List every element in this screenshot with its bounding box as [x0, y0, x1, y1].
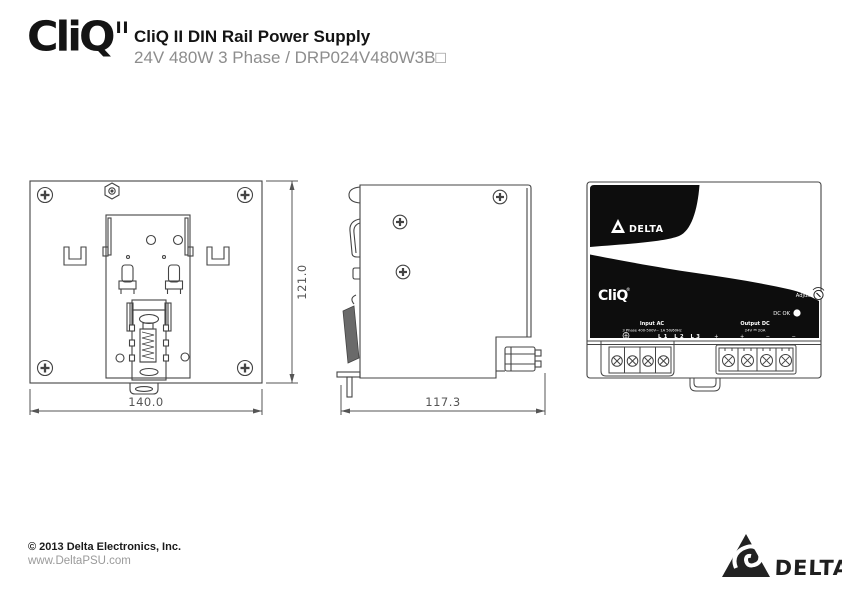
back-case-outline — [30, 181, 262, 383]
delta-wordmark: DELTA — [774, 556, 842, 580]
adjust-label: Adjust — [796, 293, 812, 299]
back-height-label: 121.0 — [295, 264, 309, 299]
page-subtitle: 24V 480W 3 Phase / DRP024V480W3B□ — [134, 47, 446, 68]
delta-footer-logo: DELTA — [712, 527, 842, 585]
input-ac-spec: 3 Phase 400-500V~ 1A 50/60Hz — [622, 329, 681, 333]
datasheet-page: CliQ II CliQ II DIN Rail Power Supply 24… — [0, 0, 850, 600]
latch-left — [119, 265, 136, 294]
clip-spring — [343, 306, 359, 363]
latch-right — [166, 265, 183, 294]
copyright-text: © 2013 Delta Electronics, Inc. — [28, 541, 181, 553]
output-dc-spec: 24V ⎓ 20A — [745, 328, 766, 333]
cliq-logo-sup: II — [116, 18, 130, 37]
side-view-drawing: 117.3 — [330, 173, 560, 425]
title-block: CliQ II DIN Rail Power Supply 24V 480W 3… — [134, 27, 446, 68]
panel-cliq-logo: CliQ — [598, 288, 628, 304]
corner-screw-icons — [38, 188, 253, 376]
side-depth-label: 117.3 — [425, 395, 460, 409]
mounting-plate — [106, 215, 190, 378]
input-terminal-labels: L1 L2 L3 — [658, 334, 702, 340]
website-text: www.DeltaPSU.com — [28, 555, 131, 567]
panel-delta-wordmark: DELTA — [629, 224, 664, 235]
output-terminal-block — [716, 345, 796, 374]
input-terminal-block — [601, 341, 674, 376]
cliq-logo: CliQ II — [27, 14, 130, 60]
side-terminal-block — [496, 347, 541, 371]
output-polarity-labels: + + − − — [714, 334, 806, 340]
height-dimension — [266, 181, 298, 383]
hex-stud-icon — [105, 183, 119, 199]
panel-cliq-reg: ® — [626, 286, 631, 293]
right-bracket — [207, 247, 229, 265]
page-title: CliQ II DIN Rail Power Supply — [134, 27, 446, 47]
clip-bump — [349, 187, 360, 203]
din-tab — [130, 383, 158, 394]
dc-ok-led-icon — [793, 309, 800, 316]
front-view-drawing: DELTA CliQ ® Adjust DC OK Input AC 3 Pha… — [578, 173, 840, 405]
output-dc-title: Output DC — [740, 321, 770, 327]
back-view-drawing: 140.0 121.0 — [20, 173, 320, 425]
dc-ok-label: DC OK — [773, 311, 790, 317]
back-width-label: 140.0 — [128, 395, 163, 409]
side-screw-icons — [393, 190, 507, 279]
left-bracket — [64, 247, 86, 265]
spring-coil — [142, 332, 154, 359]
cliq-logo-word: CliQ — [27, 15, 113, 59]
input-ac-title: Input AC — [640, 321, 665, 327]
